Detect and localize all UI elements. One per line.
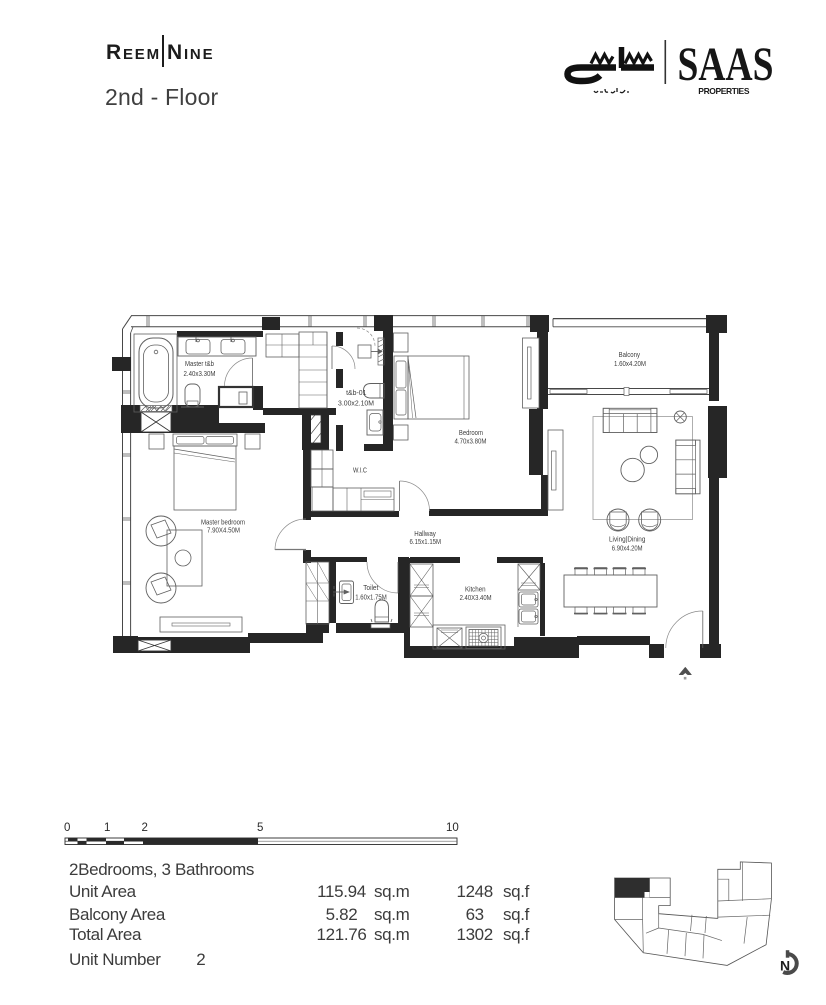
svg-text:6.15x1.15M: 6.15x1.15M: [410, 537, 442, 546]
svg-text:3.00x2.10M: 3.00x2.10M: [338, 399, 374, 408]
svg-text:N: N: [780, 958, 790, 974]
svg-text:2.40x3.30M: 2.40x3.30M: [184, 369, 216, 378]
svg-text:Master t&b: Master t&b: [185, 359, 214, 368]
svg-text:1.60x4.20M: 1.60x4.20M: [614, 359, 646, 368]
svg-text:6.90x4.20M: 6.90x4.20M: [612, 543, 643, 552]
svg-text:4.70x3.80M: 4.70x3.80M: [455, 436, 487, 445]
svg-text:Balcony: Balcony: [619, 350, 640, 359]
svg-text:W.I.C: W.I.C: [353, 465, 367, 474]
svg-text:Living|Dining: Living|Dining: [609, 534, 645, 543]
svg-text:7.90X4.50M: 7.90X4.50M: [207, 526, 240, 535]
svg-text:1.60x1.75M: 1.60x1.75M: [355, 593, 387, 602]
svg-text:t&b-01: t&b-01: [346, 388, 366, 397]
svg-text:2.40X3.40M: 2.40X3.40M: [460, 593, 492, 602]
svg-text:Toilet: Toilet: [363, 583, 379, 592]
